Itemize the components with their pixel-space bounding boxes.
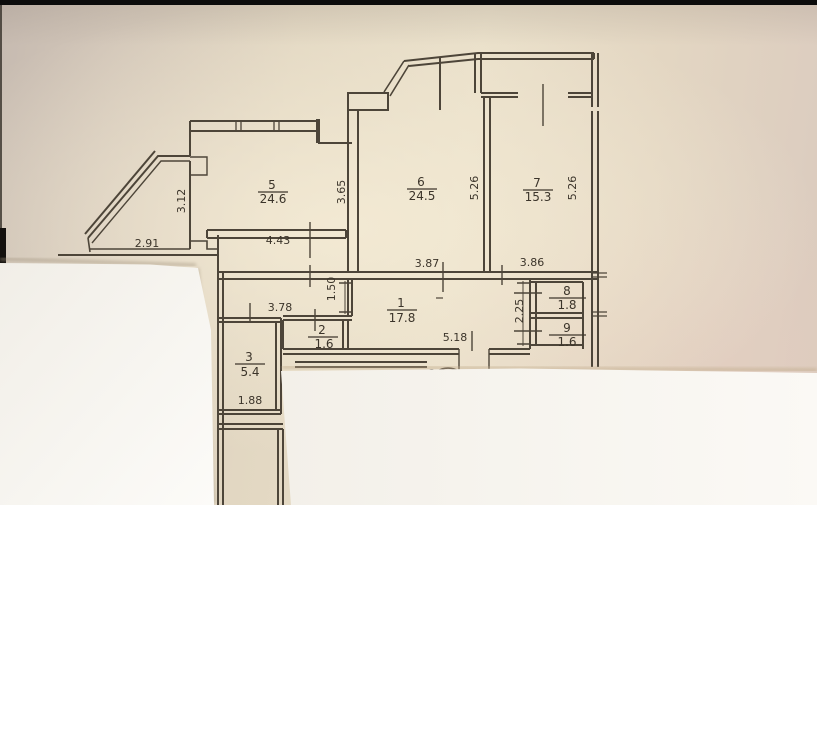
room-2-area: 1.6 [314, 337, 333, 351]
photo-left-black-edge [0, 5, 2, 265]
dim-5-18: 5.18 [443, 331, 468, 344]
room-5-number: 5 [268, 178, 276, 192]
floor-plan-photo: 5 24.6 6 24.5 7 15.3 1 17.8 2 1.6 3 5.4 … [0, 0, 817, 505]
room-7-area: 15.3 [525, 190, 552, 204]
room-3-area: 5.4 [240, 365, 259, 379]
dim-3-78: 3.78 [268, 301, 293, 314]
dim-3-86: 3.86 [520, 256, 545, 269]
dim-2-91: 2.91 [135, 237, 160, 250]
room-6-number: 6 [417, 175, 425, 189]
room-9-area: 1.6 [557, 335, 576, 349]
dimension-ticks [250, 84, 543, 381]
dim-3-87: 3.87 [415, 257, 440, 270]
room-1-area: 17.8 [389, 311, 416, 325]
overlay-paper-left [0, 263, 214, 505]
photo-top-black-bar [0, 0, 817, 5]
dim-3-65: 3.65 [335, 180, 348, 205]
room-1-number: 1 [397, 296, 405, 310]
dim-3-12: 3.12 [175, 189, 188, 214]
dim-4-43: 4.43 [266, 234, 291, 247]
room-8-number: 8 [563, 284, 571, 298]
page: 5 24.6 6 24.5 7 15.3 1 17.8 2 1.6 3 5.4 … [0, 0, 817, 750]
room-2-number: 2 [318, 323, 326, 337]
room-5-area: 24.6 [260, 192, 287, 206]
dim-5-26-room7: 5.26 [566, 176, 579, 201]
room-8-area: 1.8 [557, 298, 576, 312]
room-6-area: 24.5 [409, 189, 436, 203]
dim-1-50: 1.50 [325, 277, 338, 302]
fraction-bars [235, 189, 586, 364]
dim-2-25: 2.25 [513, 299, 526, 324]
room-7-number: 7 [533, 176, 541, 190]
room-9-number: 9 [563, 321, 571, 335]
overlay-paper-bottom [281, 369, 817, 506]
room-3-number: 3 [245, 350, 253, 364]
floor-plan-drawing: 5 24.6 6 24.5 7 15.3 1 17.8 2 1.6 3 5.4 … [0, 0, 817, 505]
page-white-area [0, 505, 817, 750]
dim-1-88: 1.88 [238, 394, 263, 407]
dim-5-26-room6: 5.26 [468, 176, 481, 201]
